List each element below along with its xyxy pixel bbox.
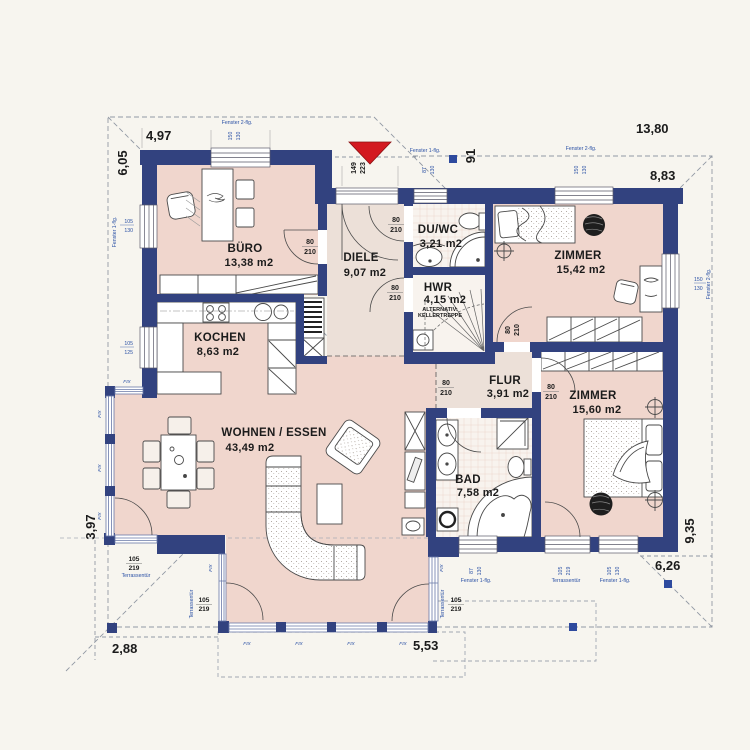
svg-text:219: 219 xyxy=(129,565,140,572)
svg-text:15,60 m2: 15,60 m2 xyxy=(573,404,622,416)
svg-text:130: 130 xyxy=(236,132,242,141)
svg-text:9,35: 9,35 xyxy=(682,518,697,543)
svg-text:Fenster 1-flg.: Fenster 1-flg. xyxy=(112,217,118,248)
svg-text:150: 150 xyxy=(694,277,703,283)
svg-text:6,26: 6,26 xyxy=(655,558,680,573)
svg-text:Fenster 2-flg.: Fenster 2-flg. xyxy=(706,269,712,300)
svg-text:FIX: FIX xyxy=(97,409,103,417)
svg-text:210: 210 xyxy=(545,394,557,401)
svg-text:43,49 m2: 43,49 m2 xyxy=(226,442,275,454)
svg-text:80: 80 xyxy=(306,239,314,246)
svg-text:80: 80 xyxy=(391,285,399,292)
svg-text:105: 105 xyxy=(558,567,564,576)
svg-text:FIX: FIX xyxy=(295,641,303,647)
svg-text:149: 149 xyxy=(351,162,358,174)
svg-text:FIX: FIX xyxy=(208,563,214,571)
svg-text:Fenster 1-flg.: Fenster 1-flg. xyxy=(600,578,631,584)
svg-text:150: 150 xyxy=(228,132,234,141)
svg-text:87: 87 xyxy=(422,167,428,173)
svg-text:80: 80 xyxy=(442,380,450,387)
svg-text:3,91 m2: 3,91 m2 xyxy=(487,388,529,400)
svg-text:Fenster 2-flg.: Fenster 2-flg. xyxy=(222,120,253,126)
svg-text:FIX: FIX xyxy=(97,511,103,519)
svg-text:7,58 m2: 7,58 m2 xyxy=(457,487,499,499)
svg-text:HWR: HWR xyxy=(424,282,453,294)
svg-text:FIX: FIX xyxy=(347,641,355,647)
svg-text:FIX: FIX xyxy=(439,563,445,571)
svg-text:105: 105 xyxy=(124,219,133,225)
svg-text:150: 150 xyxy=(574,166,580,175)
svg-text:DU/WC: DU/WC xyxy=(418,224,458,236)
svg-text:4,15 m2: 4,15 m2 xyxy=(424,294,466,306)
svg-text:105: 105 xyxy=(607,567,613,576)
svg-text:105: 105 xyxy=(199,597,210,604)
svg-text:2,88: 2,88 xyxy=(112,641,137,656)
svg-text:Terrassentür: Terrassentür xyxy=(189,589,195,618)
svg-text:FLUR: FLUR xyxy=(489,375,521,387)
svg-text:BÜRO: BÜRO xyxy=(227,242,262,255)
svg-text:FIX: FIX xyxy=(97,463,103,471)
svg-text:130: 130 xyxy=(582,166,588,175)
svg-text:210: 210 xyxy=(389,295,401,302)
svg-text:13,80: 13,80 xyxy=(636,121,669,136)
svg-text:130: 130 xyxy=(477,567,483,576)
svg-text:3,21 m2: 3,21 m2 xyxy=(420,238,462,250)
svg-text:Terrassentür: Terrassentür xyxy=(122,573,151,579)
svg-text:FIX: FIX xyxy=(243,641,251,647)
svg-text:Terrassentür: Terrassentür xyxy=(440,589,446,618)
svg-text:223: 223 xyxy=(360,162,367,174)
svg-text:210: 210 xyxy=(440,390,452,397)
svg-text:WOHNEN / ESSEN: WOHNEN / ESSEN xyxy=(221,427,326,439)
svg-text:210: 210 xyxy=(304,249,316,256)
svg-text:80: 80 xyxy=(505,326,512,334)
svg-text:219: 219 xyxy=(566,567,572,576)
svg-text:80: 80 xyxy=(392,217,400,224)
svg-text:8,83: 8,83 xyxy=(650,168,675,183)
svg-text:210: 210 xyxy=(514,324,521,336)
svg-text:BAD: BAD xyxy=(455,474,481,486)
svg-text:ZIMMER: ZIMMER xyxy=(554,250,602,262)
svg-text:4,97: 4,97 xyxy=(146,128,171,143)
svg-text:3,97: 3,97 xyxy=(83,514,98,539)
svg-text:5,53: 5,53 xyxy=(413,638,438,653)
svg-text:Fenster 1-flg.: Fenster 1-flg. xyxy=(461,578,492,584)
svg-text:6,05: 6,05 xyxy=(115,150,130,175)
svg-text:210: 210 xyxy=(390,227,402,234)
svg-text:15,42 m2: 15,42 m2 xyxy=(557,264,606,276)
svg-text:13,38 m2: 13,38 m2 xyxy=(225,257,274,269)
svg-text:130: 130 xyxy=(124,228,133,234)
svg-text:FIX: FIX xyxy=(399,641,407,647)
svg-text:Fenster 1-flg.: Fenster 1-flg. xyxy=(410,148,441,154)
svg-text:Terrassentür: Terrassentür xyxy=(552,578,581,584)
svg-text:219: 219 xyxy=(199,606,210,613)
svg-text:219: 219 xyxy=(451,606,462,613)
svg-text:105: 105 xyxy=(129,556,140,563)
svg-text:105: 105 xyxy=(451,597,462,604)
svg-text:105: 105 xyxy=(124,341,133,347)
svg-text:9,07 m2: 9,07 m2 xyxy=(344,267,386,279)
svg-text:DIELE: DIELE xyxy=(343,252,378,264)
svg-text:KELLERTREPPE: KELLERTREPPE xyxy=(418,313,462,319)
svg-text:FIX: FIX xyxy=(123,379,131,385)
svg-text:91: 91 xyxy=(463,149,478,163)
svg-text:8,63 m2: 8,63 m2 xyxy=(197,346,239,358)
svg-text:KOCHEN: KOCHEN xyxy=(194,332,246,344)
svg-text:130: 130 xyxy=(430,166,436,175)
svg-text:ZIMMER: ZIMMER xyxy=(569,390,617,402)
svg-text:Fenster 2-flg.: Fenster 2-flg. xyxy=(566,146,597,152)
svg-text:130: 130 xyxy=(694,286,703,292)
svg-text:125: 125 xyxy=(124,350,133,356)
svg-text:80: 80 xyxy=(547,384,555,391)
svg-text:130: 130 xyxy=(615,567,621,576)
svg-text:87: 87 xyxy=(469,568,475,574)
